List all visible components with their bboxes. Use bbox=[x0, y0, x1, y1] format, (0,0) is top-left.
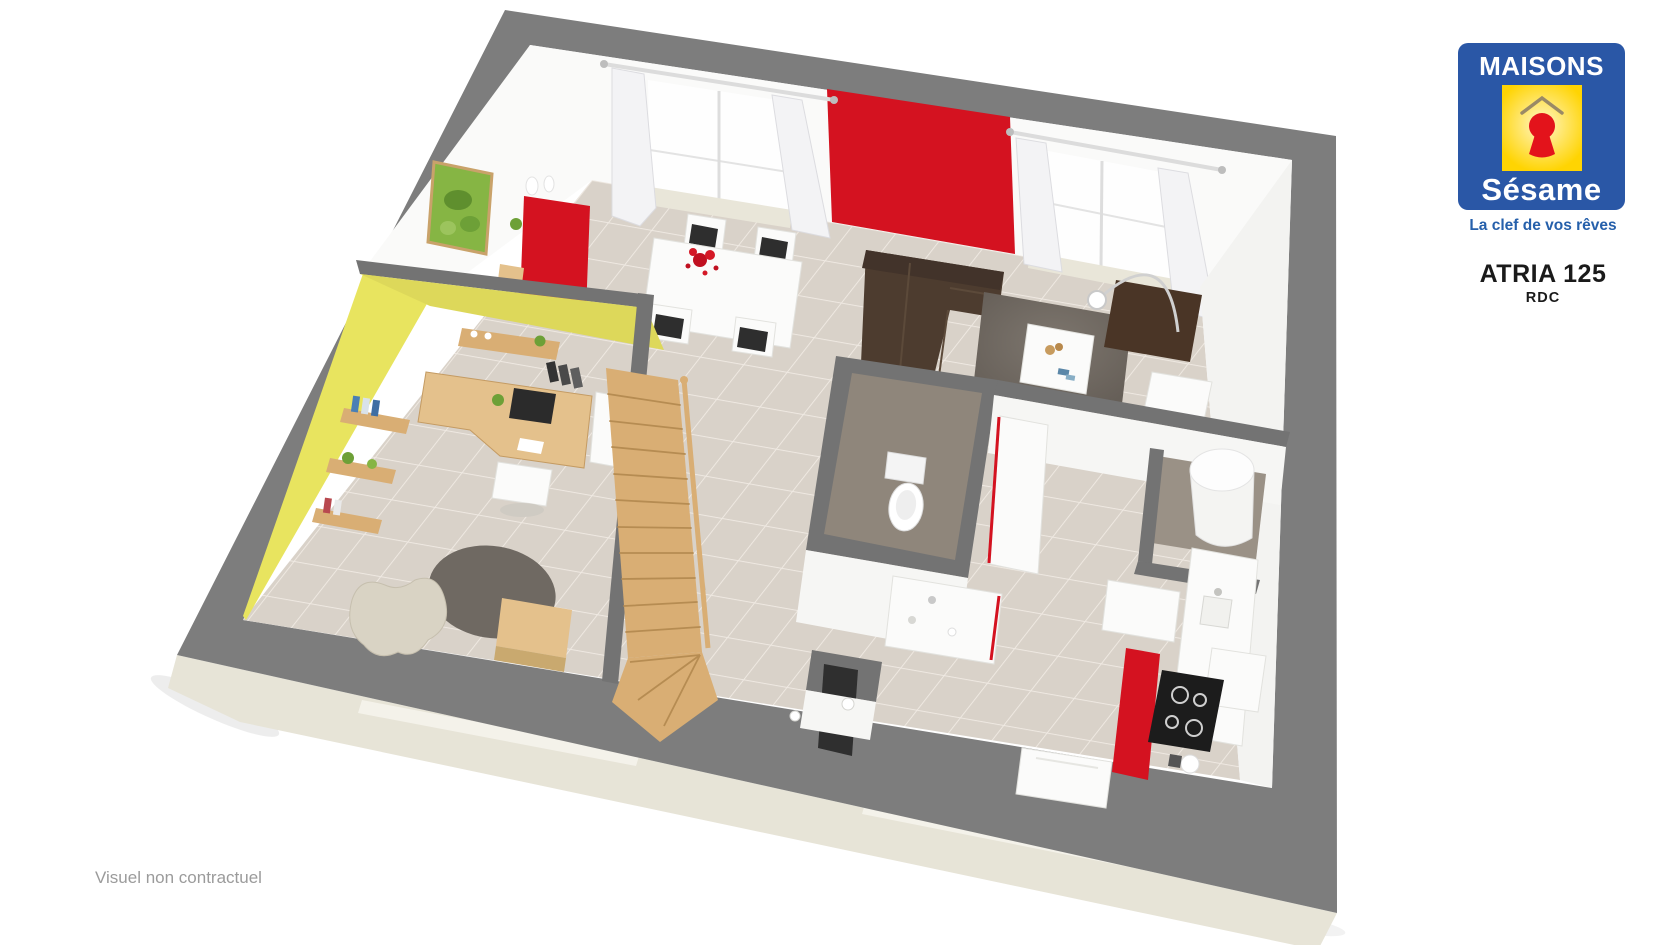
plan-level: RDC bbox=[1458, 290, 1628, 306]
monitor bbox=[509, 388, 556, 424]
coffee-table bbox=[1020, 324, 1094, 394]
disclaimer-text: Visuel non contractuel bbox=[95, 868, 262, 888]
keyhole-house-icon bbox=[1502, 85, 1582, 171]
brand-tagline: La clef de vos rêves bbox=[1458, 217, 1628, 235]
brand-block: MAISONS Sésame La clef de vos rêves ATRI… bbox=[1458, 43, 1628, 306]
maisons-sesame-logo: MAISONS Sésame bbox=[1458, 43, 1625, 210]
floor-plan-3d bbox=[0, 0, 1680, 945]
cube-side-table bbox=[494, 598, 572, 672]
accessory bbox=[790, 711, 800, 721]
page: MAISONS Sésame La clef de vos rêves ATRI… bbox=[0, 0, 1680, 945]
tall-cabinet-red-trim bbox=[989, 416, 1048, 574]
plan-title: ATRIA 125 bbox=[1458, 260, 1628, 289]
plant bbox=[510, 218, 522, 230]
accessory bbox=[842, 698, 854, 710]
water-heater bbox=[1190, 449, 1254, 546]
office-chair bbox=[492, 462, 552, 517]
logo-wordmark-bottom: Sésame bbox=[1481, 172, 1601, 208]
faucet bbox=[928, 596, 936, 604]
roof-icon bbox=[1522, 98, 1562, 113]
dining-chair bbox=[732, 317, 776, 357]
picture-frame bbox=[428, 162, 492, 254]
logo-wordmark-top: MAISONS bbox=[1479, 51, 1604, 82]
